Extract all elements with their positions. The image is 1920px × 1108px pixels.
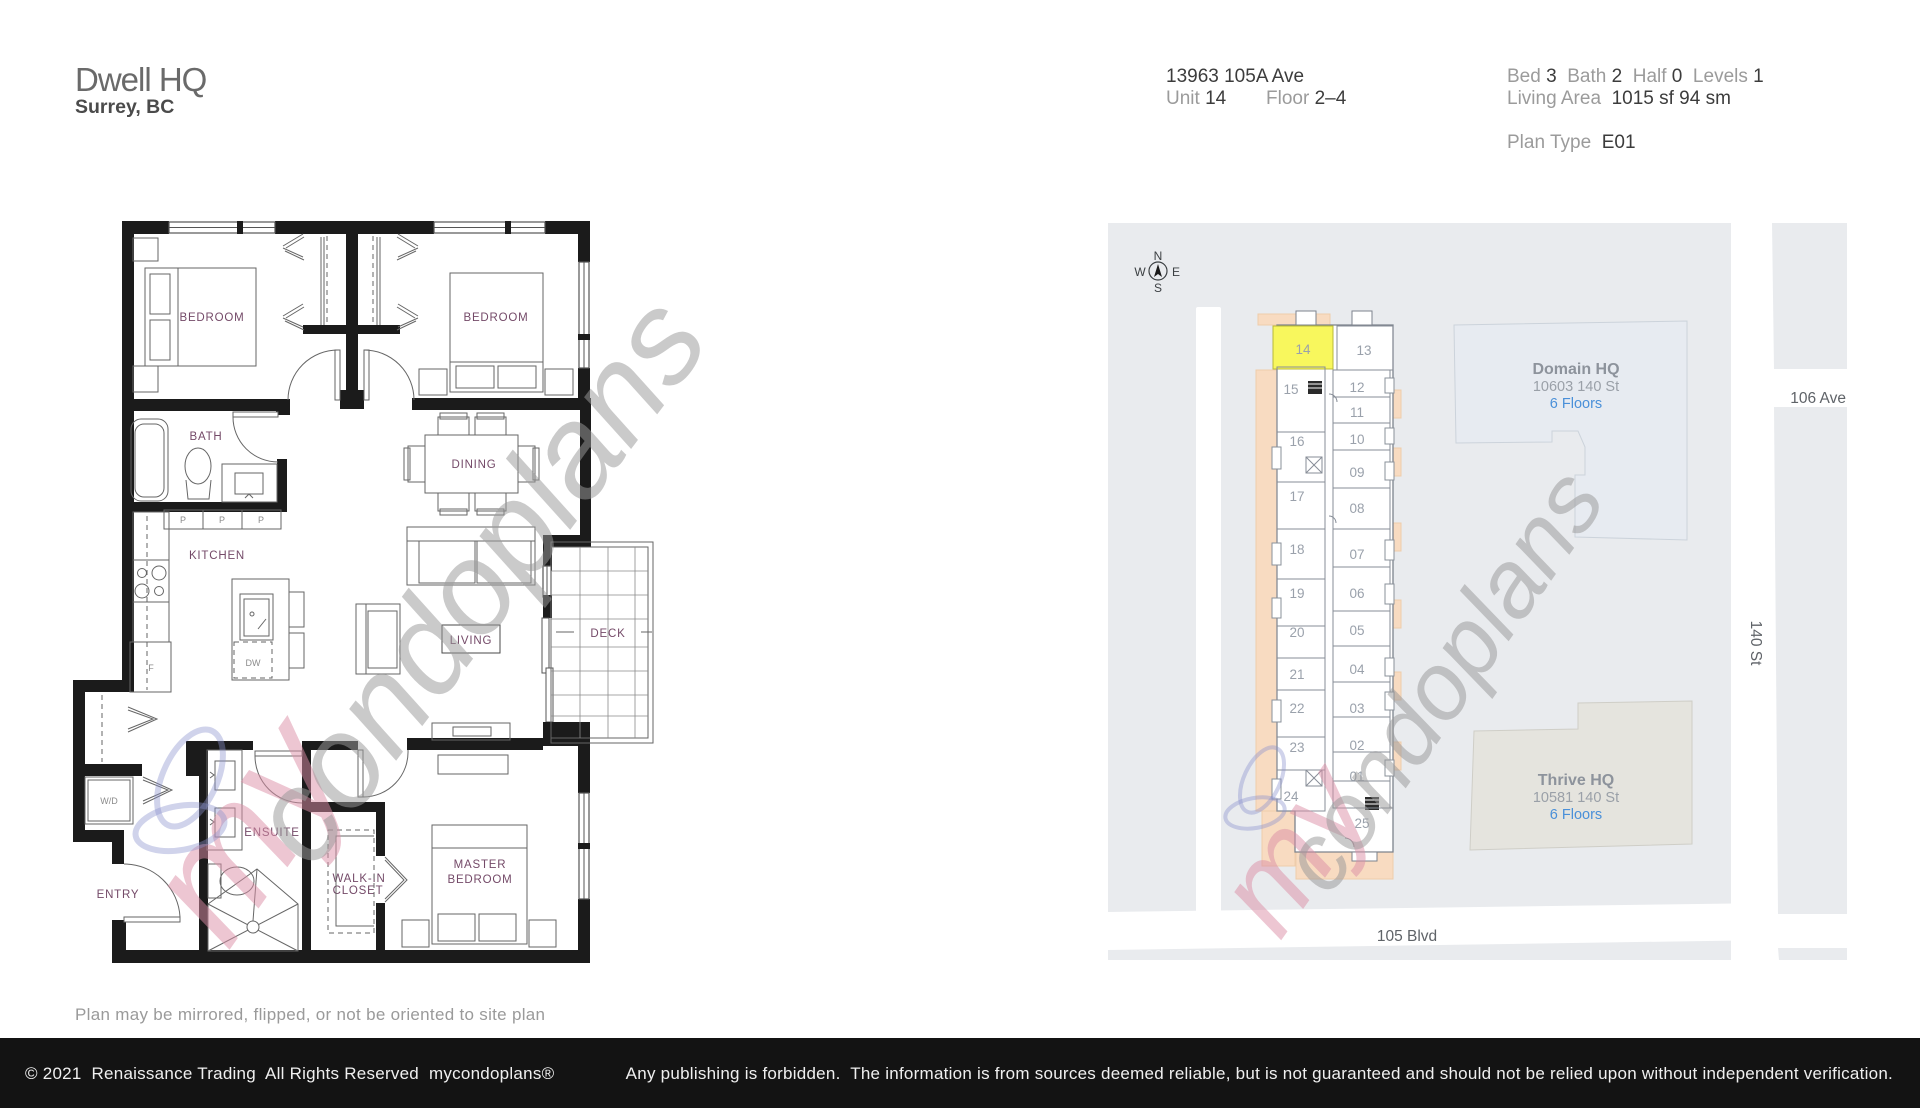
svg-text:ENTRY: ENTRY	[97, 889, 140, 901]
svg-text:Plan Type E01: Plan Type E01	[1507, 132, 1636, 153]
svg-text:E: E	[1172, 265, 1180, 279]
svg-text:14: 14	[1295, 342, 1311, 357]
svg-text:BEDROOM: BEDROOM	[463, 312, 528, 324]
svg-text:6 Floors: 6 Floors	[1550, 396, 1602, 412]
svg-text:Unit 14: Unit 14	[1166, 88, 1227, 109]
svg-text:Domain HQ: Domain HQ	[1532, 361, 1619, 378]
svg-text:Living Area 1015 sf 94 sm: Living Area 1015 sf 94 sm	[1507, 88, 1731, 109]
svg-text:BEDROOM: BEDROOM	[447, 874, 512, 886]
svg-text:08: 08	[1349, 501, 1364, 516]
svg-text:P: P	[258, 515, 264, 525]
svg-text:W/D: W/D	[100, 796, 118, 806]
svg-text:22: 22	[1289, 701, 1304, 716]
svg-text:10: 10	[1349, 432, 1364, 447]
svg-text:BATH: BATH	[189, 431, 222, 443]
svg-text:09: 09	[1349, 465, 1364, 480]
svg-text:P: P	[219, 515, 225, 525]
svg-text:13: 13	[1356, 343, 1371, 358]
svg-text:DW: DW	[246, 658, 261, 668]
svg-text:17: 17	[1289, 489, 1304, 504]
svg-text:19: 19	[1289, 586, 1304, 601]
svg-text:10603 140 St: 10603 140 St	[1533, 379, 1619, 395]
svg-text:Any publishing is forbidden.: Any publishing is forbidden. The informa…	[626, 1064, 1893, 1083]
svg-text:106 Ave: 106 Ave	[1790, 390, 1846, 407]
svg-text:Thrive HQ: Thrive HQ	[1538, 772, 1614, 789]
svg-text:06: 06	[1349, 586, 1364, 601]
svg-text:BEDROOM: BEDROOM	[179, 312, 244, 324]
svg-text:F: F	[148, 663, 154, 673]
svg-text:© 2021 Renaissance Trading A: © 2021 Renaissance Trading All Rights Re…	[25, 1064, 555, 1083]
svg-text:S: S	[1154, 281, 1162, 295]
svg-text:6 Floors: 6 Floors	[1550, 807, 1602, 823]
svg-text:16: 16	[1289, 434, 1304, 449]
svg-text:N: N	[1154, 249, 1163, 263]
svg-text:12: 12	[1349, 380, 1364, 395]
svg-text:CLOSET: CLOSET	[333, 885, 384, 897]
svg-text:105 Blvd: 105 Blvd	[1377, 928, 1437, 945]
svg-text:05: 05	[1349, 623, 1364, 638]
svg-text:Floor 2–4: Floor 2–4	[1266, 88, 1347, 109]
svg-text:Bed 3 Bath 2 Half 0 Levels: Bed 3 Bath 2 Half 0 Levels 1	[1507, 66, 1764, 87]
svg-text:10581 140 St: 10581 140 St	[1533, 790, 1619, 806]
svg-text:21: 21	[1289, 667, 1304, 682]
svg-text:15: 15	[1283, 382, 1298, 397]
svg-text:MASTER: MASTER	[454, 859, 507, 871]
svg-text:04: 04	[1349, 662, 1365, 677]
svg-text:Dwell HQ: Dwell HQ	[75, 61, 207, 98]
svg-text:13963 105A Ave: 13963 105A Ave	[1166, 66, 1304, 87]
svg-text:Surrey, BC: Surrey, BC	[75, 96, 174, 118]
svg-text:P: P	[180, 515, 186, 525]
svg-text:07: 07	[1349, 547, 1364, 562]
svg-text:KITCHEN: KITCHEN	[189, 550, 245, 562]
svg-text:Plan may be mirrored, flipped,: Plan may be mirrored, flipped, or not be…	[75, 1005, 545, 1024]
svg-text:W: W	[1134, 265, 1146, 279]
svg-text:140 St: 140 St	[1747, 621, 1764, 667]
svg-text:11: 11	[1350, 405, 1364, 420]
svg-text:18: 18	[1289, 542, 1304, 557]
svg-text:20: 20	[1289, 625, 1304, 640]
